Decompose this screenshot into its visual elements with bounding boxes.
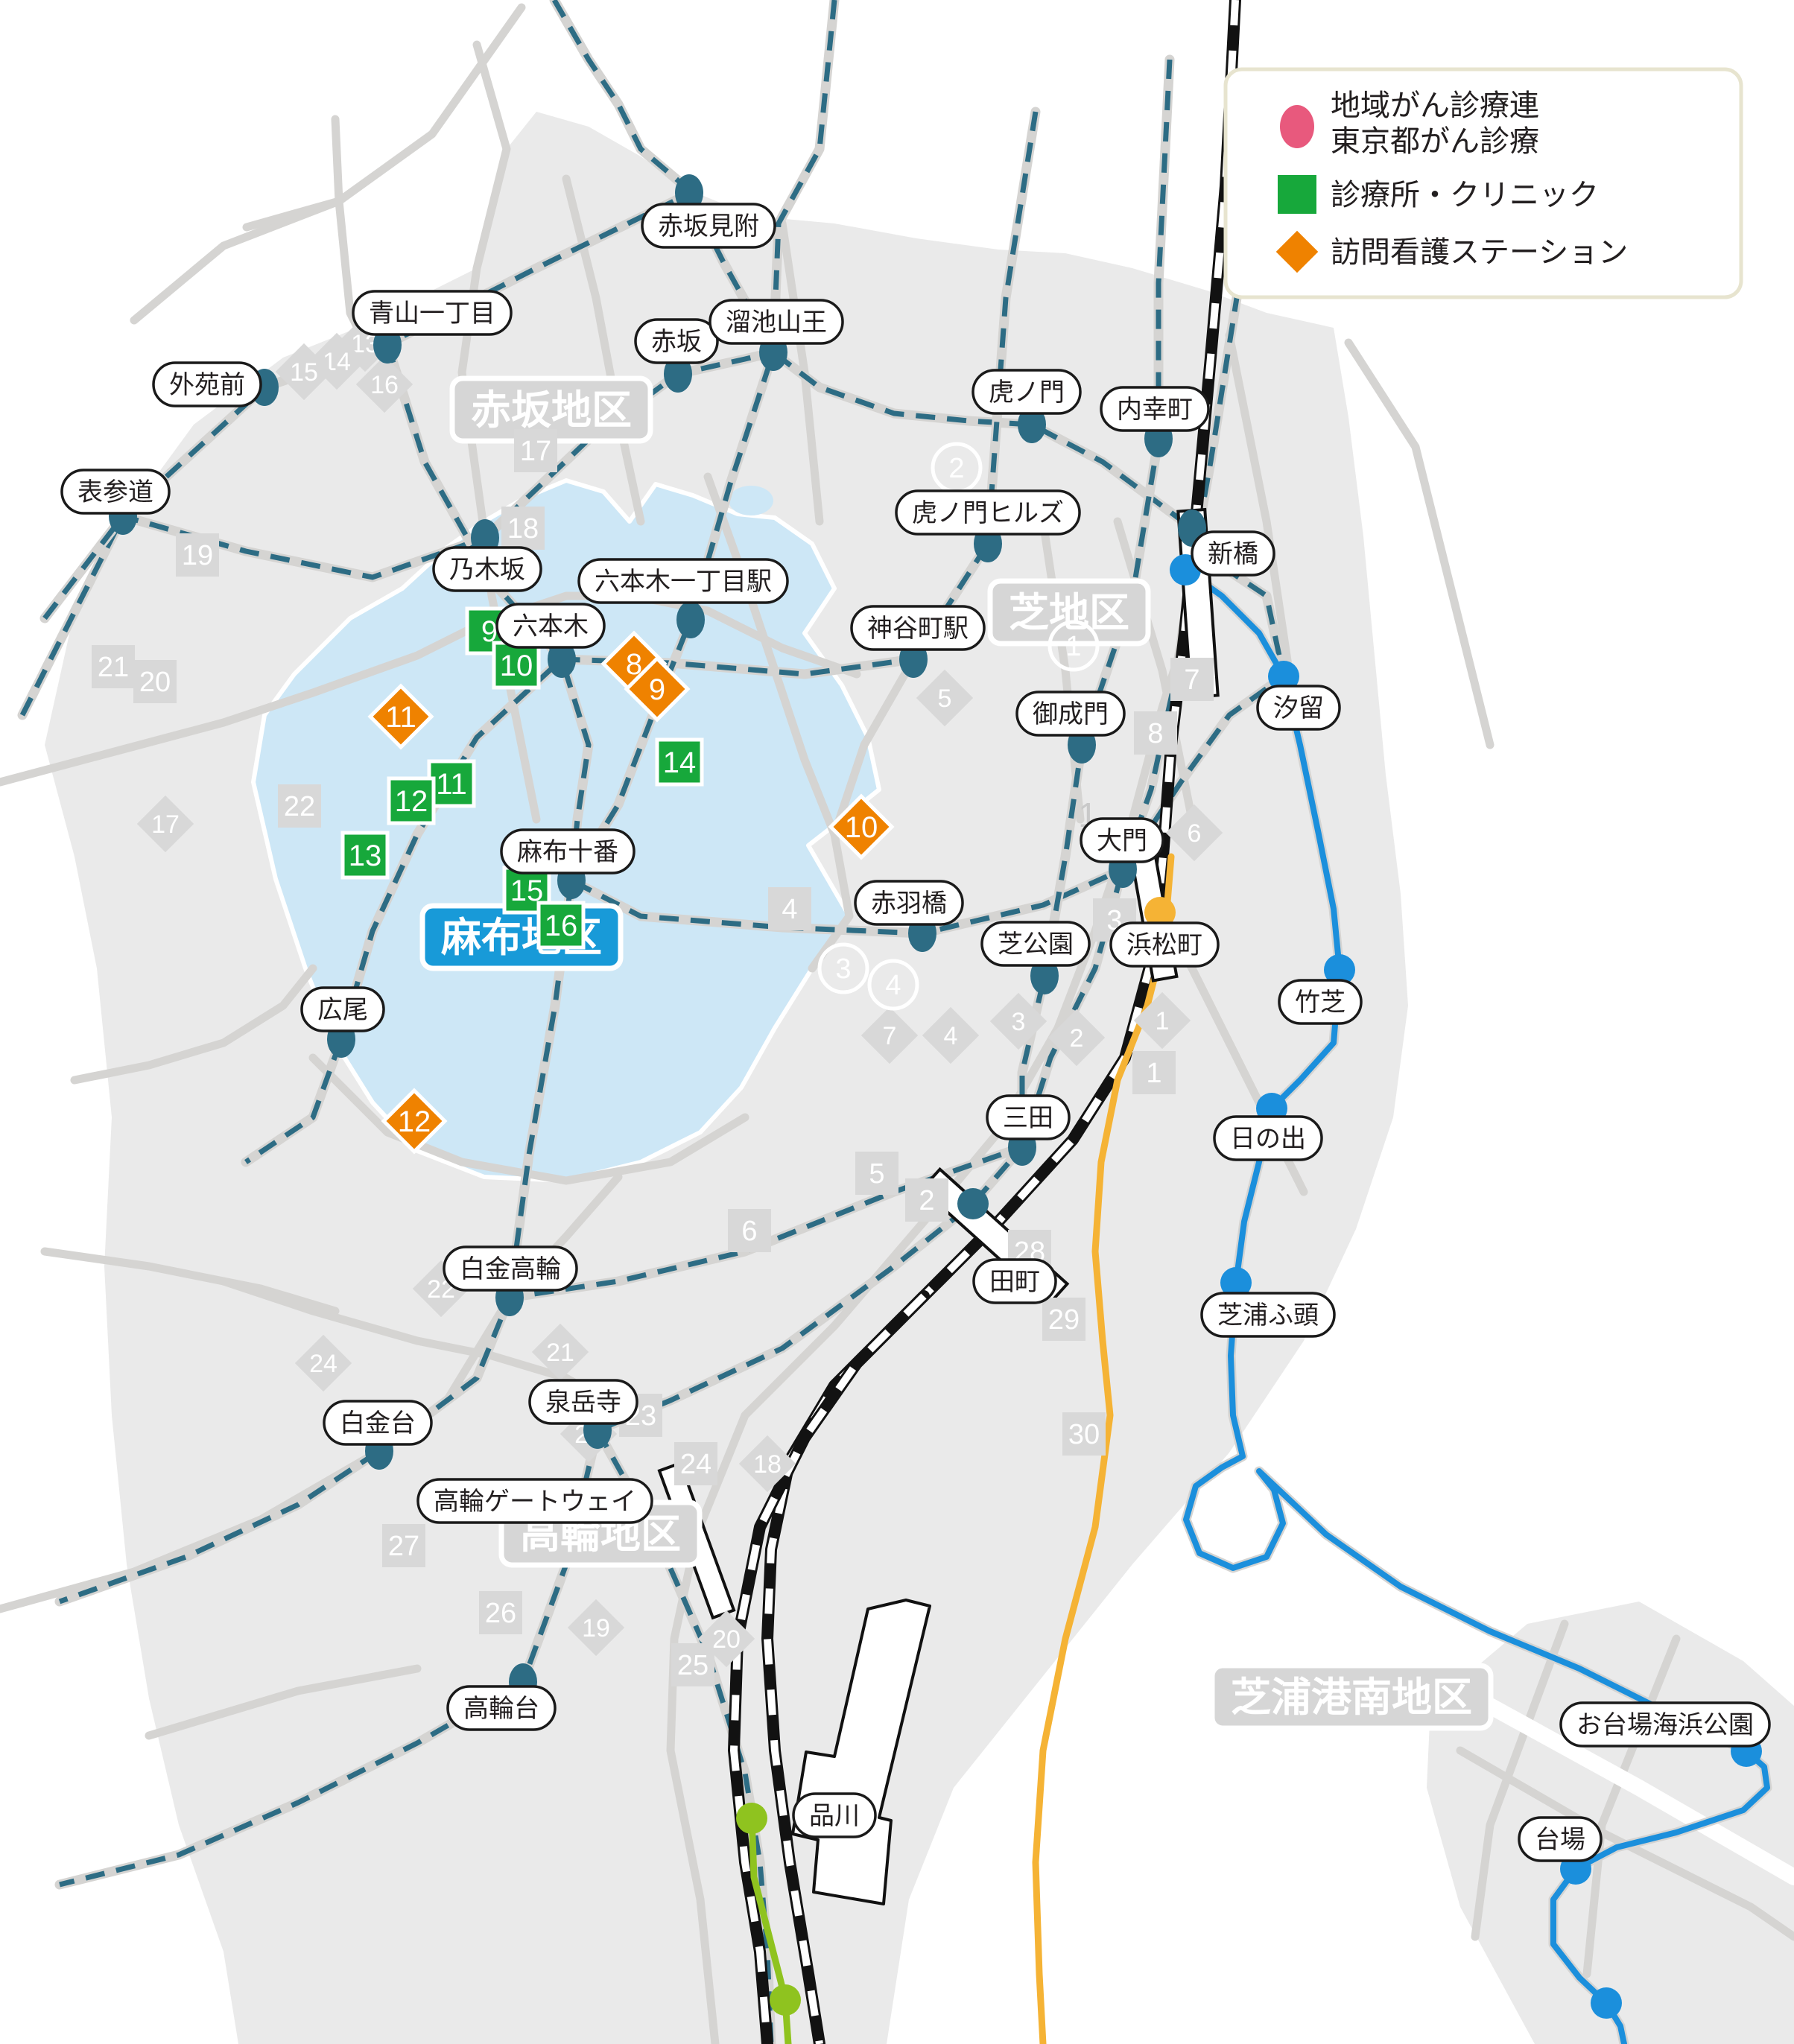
station-label-text: 内幸町 xyxy=(1117,396,1193,424)
area-number-square: 24 xyxy=(674,1442,717,1485)
station-dot xyxy=(1591,1987,1622,2019)
square-number: 26 xyxy=(485,1598,516,1629)
area-number-square: 30 xyxy=(1062,1412,1106,1456)
clinic-number: 14 xyxy=(663,746,697,779)
legend: 地域がん診療連東京都がん診療診療所・クリニック訪問看護ステーション xyxy=(1226,69,1741,297)
diamond-number: 21 xyxy=(546,1339,574,1367)
station-label: 神谷町駅 xyxy=(852,606,984,650)
area-number-square: 22 xyxy=(278,784,321,828)
clinic-marker: 14 xyxy=(657,740,702,784)
station-label-text: 日の出 xyxy=(1230,1125,1306,1153)
station-label: 溜池山王 xyxy=(710,300,843,343)
diamond-number: 19 xyxy=(582,1614,610,1642)
station-label-text: 虎ノ門ヒルズ xyxy=(912,499,1064,527)
station-label: 白金台 xyxy=(324,1401,431,1444)
station-label-text: 白金台 xyxy=(340,1409,416,1438)
diamond-number: 18 xyxy=(753,1450,782,1479)
station-label: 内幸町 xyxy=(1101,387,1208,431)
area-number-square: 1 xyxy=(1132,1051,1176,1094)
diamond-number: 20 xyxy=(712,1625,741,1654)
circle-number: 3 xyxy=(835,953,851,985)
square-number: 8 xyxy=(1147,718,1163,749)
station-label: 大門 xyxy=(1081,819,1163,862)
diamond-number: 2 xyxy=(1070,1024,1084,1053)
area-number-square: 5 xyxy=(855,1152,898,1195)
legend-item-text: 訪問看護ステーション xyxy=(1331,236,1628,269)
clinic-number: 11 xyxy=(436,768,467,801)
station-label: 汐留 xyxy=(1258,686,1340,729)
district-label-text: 赤坂地区 xyxy=(471,388,632,433)
area-number-square: 18 xyxy=(501,507,545,550)
station-label-text: 表参道 xyxy=(77,478,153,507)
station-label: お台場海浜公園 xyxy=(1561,1703,1769,1746)
station-label-text: 虎ノ門 xyxy=(989,378,1065,407)
clinic-number: 10 xyxy=(500,650,533,682)
station-label: 白金高輪 xyxy=(444,1247,577,1290)
district-label-text: 芝浦港南地区 xyxy=(1231,1675,1472,1720)
station-label-text: 外苑前 xyxy=(169,371,245,399)
station-label-text: 汐留 xyxy=(1273,694,1324,723)
area-number-square: 19 xyxy=(176,533,219,577)
square-number: 6 xyxy=(741,1216,757,1247)
diamond-number: 1 xyxy=(1156,1007,1170,1035)
clinic-number: 16 xyxy=(545,910,578,942)
diamond-number: 17 xyxy=(151,810,180,839)
station-label-text: 芝浦ふ頭 xyxy=(1217,1301,1319,1330)
nurse-number: 11 xyxy=(385,701,416,734)
station-label: 三田 xyxy=(987,1096,1069,1139)
station-label-text: 麻布十番 xyxy=(517,838,618,866)
station-label-text: 三田 xyxy=(1003,1104,1053,1132)
station-label: 泉岳寺 xyxy=(530,1380,637,1423)
area-number-square: 25 xyxy=(671,1643,714,1686)
map-canvas: 赤坂地区芝地区麻布地区高輪地区芝浦港南地区1718192120227843152… xyxy=(0,0,1794,2044)
district-label: 芝浦港南地区 xyxy=(1212,1666,1491,1728)
station-label-text: お台場海浜公園 xyxy=(1576,1711,1754,1739)
station-label-text: 御成門 xyxy=(1033,700,1109,729)
station-label: 表参道 xyxy=(62,470,169,513)
diamond-number: 6 xyxy=(1188,819,1202,848)
diamond-number: 16 xyxy=(370,371,399,399)
station-label-text: 高輪ゲートウェイ xyxy=(434,1488,636,1516)
area-number-square: 7 xyxy=(1170,658,1214,701)
station-label-text: 赤羽橋 xyxy=(871,889,947,918)
station-label-text: 泉岳寺 xyxy=(545,1388,621,1417)
station-label-text: 浜松町 xyxy=(1126,931,1202,959)
diamond-number: 15 xyxy=(290,358,318,387)
square-number: 25 xyxy=(677,1650,709,1681)
station-label: 御成門 xyxy=(1017,692,1124,735)
station-dot xyxy=(736,1803,767,1834)
square-number: 24 xyxy=(680,1449,711,1480)
square-number: 19 xyxy=(182,540,213,571)
station-label: 高輪ゲートウェイ xyxy=(418,1479,652,1523)
station-label: 田町 xyxy=(974,1260,1056,1303)
area-number-square: 17 xyxy=(514,429,557,472)
station-label: 高輪台 xyxy=(448,1686,555,1730)
clinic-marker: 13 xyxy=(343,833,387,877)
diamond-number: 24 xyxy=(309,1350,337,1378)
district-label: 麻布地区 xyxy=(422,906,621,968)
square-number: 30 xyxy=(1068,1419,1100,1450)
clinic-square-icon xyxy=(1278,175,1316,214)
station-label-text: 新橋 xyxy=(1208,540,1258,568)
circle-number: 1 xyxy=(1065,631,1081,662)
station-dot xyxy=(676,601,705,638)
station-label-text: 赤坂見附 xyxy=(658,212,759,241)
square-number: 17 xyxy=(520,436,551,467)
station-label: 台場 xyxy=(1519,1818,1601,1861)
diamond-number: 5 xyxy=(938,685,952,713)
clinic-marker: 16 xyxy=(539,903,583,948)
clinic-marker: 10 xyxy=(494,643,539,688)
station-dot xyxy=(957,1188,989,1219)
area-number-square: 26 xyxy=(479,1591,522,1634)
circle-number: 4 xyxy=(885,970,901,1001)
clinic-number: 13 xyxy=(349,839,382,872)
legend-item-text: 診療所・クリニック xyxy=(1331,179,1599,212)
district-label-text: 芝地区 xyxy=(1009,591,1129,635)
station-label: 品川 xyxy=(793,1794,875,1837)
station-label: 六本木一丁目駅 xyxy=(579,559,787,603)
clinic-marker: 11 xyxy=(429,761,474,806)
station-label: 六本木 xyxy=(497,604,604,647)
square-number: 5 xyxy=(869,1158,884,1190)
station-label-text: 赤坂 xyxy=(651,328,702,356)
area-number-square: 4 xyxy=(768,887,811,930)
nurse-number: 10 xyxy=(845,811,878,844)
station-label-text: 青山一丁目 xyxy=(369,299,495,328)
station-label: 虎ノ門ヒルズ xyxy=(896,491,1080,534)
station-label-text: 乃木坂 xyxy=(449,556,525,584)
station-label-text: 白金高輪 xyxy=(460,1255,561,1283)
station-label-text: 竹芝 xyxy=(1295,988,1345,1017)
station-label: 乃木坂 xyxy=(434,547,541,591)
pond xyxy=(729,486,773,515)
station-dot xyxy=(770,1984,801,2016)
nurse-number: 9 xyxy=(649,673,665,706)
station-label-text: 六本木一丁目駅 xyxy=(595,568,772,596)
diamond-number: 3 xyxy=(1012,1008,1026,1036)
station-label: 外苑前 xyxy=(153,363,261,406)
station-label-text: 品川 xyxy=(809,1802,860,1830)
cancer-care-circle-icon xyxy=(1280,105,1314,148)
square-number: 20 xyxy=(139,667,171,698)
square-number: 1 xyxy=(1146,1058,1161,1089)
station-label-text: 神谷町駅 xyxy=(867,615,969,643)
station-label: 新橋 xyxy=(1192,532,1274,575)
nurse-number: 12 xyxy=(398,1105,431,1138)
station-label: 虎ノ門 xyxy=(973,370,1080,413)
station-label: 青山一丁目 xyxy=(353,291,511,334)
station-label: 赤羽橋 xyxy=(855,881,963,924)
station-label: 赤坂見附 xyxy=(642,204,775,247)
square-number: 22 xyxy=(284,791,315,822)
square-number: 2 xyxy=(919,1185,934,1216)
medical-map: 赤坂地区芝地区麻布地区高輪地区芝浦港南地区1718192120227843152… xyxy=(0,0,1794,2044)
area-number-square: 2 xyxy=(905,1178,948,1222)
square-number: 7 xyxy=(1184,664,1199,696)
area-number-square: 27 xyxy=(382,1524,425,1567)
square-number: 21 xyxy=(98,652,129,683)
station-label: 竹芝 xyxy=(1279,980,1361,1023)
legend-item-text: 東京都がん診療 xyxy=(1331,125,1539,158)
clinic-number: 12 xyxy=(395,785,428,818)
station-label: 芝公園 xyxy=(982,922,1089,965)
station-label-text: 溜池山王 xyxy=(726,308,827,337)
square-number: 18 xyxy=(507,513,539,545)
station-label-text: 高輪台 xyxy=(463,1695,539,1723)
station-label-text: 芝公園 xyxy=(998,930,1074,959)
area-number-square: 20 xyxy=(133,660,177,703)
clinic-marker: 12 xyxy=(389,778,434,823)
circle-number: 2 xyxy=(948,453,964,484)
station-label-text: 田町 xyxy=(989,1268,1040,1296)
square-number: 27 xyxy=(388,1531,419,1562)
station-label-text: 台場 xyxy=(1535,1826,1585,1854)
station-label: 浜松町 xyxy=(1111,923,1218,966)
area-number-square: 29 xyxy=(1042,1298,1085,1341)
square-number: 4 xyxy=(782,894,797,925)
area-number-square: 21 xyxy=(92,645,135,688)
station-label: 赤坂 xyxy=(635,320,717,363)
station-label: 広尾 xyxy=(302,988,384,1031)
area-number-square: 8 xyxy=(1134,711,1177,755)
square-number: 29 xyxy=(1048,1304,1080,1336)
diamond-number: 7 xyxy=(883,1022,897,1050)
legend-item-text: 地域がん診療連 xyxy=(1331,89,1539,122)
station-label: 芝浦ふ頭 xyxy=(1202,1293,1334,1336)
station-label: 日の出 xyxy=(1214,1117,1322,1160)
station-label-text: 広尾 xyxy=(317,996,368,1024)
station-label-text: 大門 xyxy=(1097,827,1147,855)
diamond-number: 4 xyxy=(944,1022,958,1050)
station-label: 麻布十番 xyxy=(501,830,634,873)
area-number-square: 6 xyxy=(728,1209,771,1252)
station-label-text: 六本木 xyxy=(513,612,589,641)
